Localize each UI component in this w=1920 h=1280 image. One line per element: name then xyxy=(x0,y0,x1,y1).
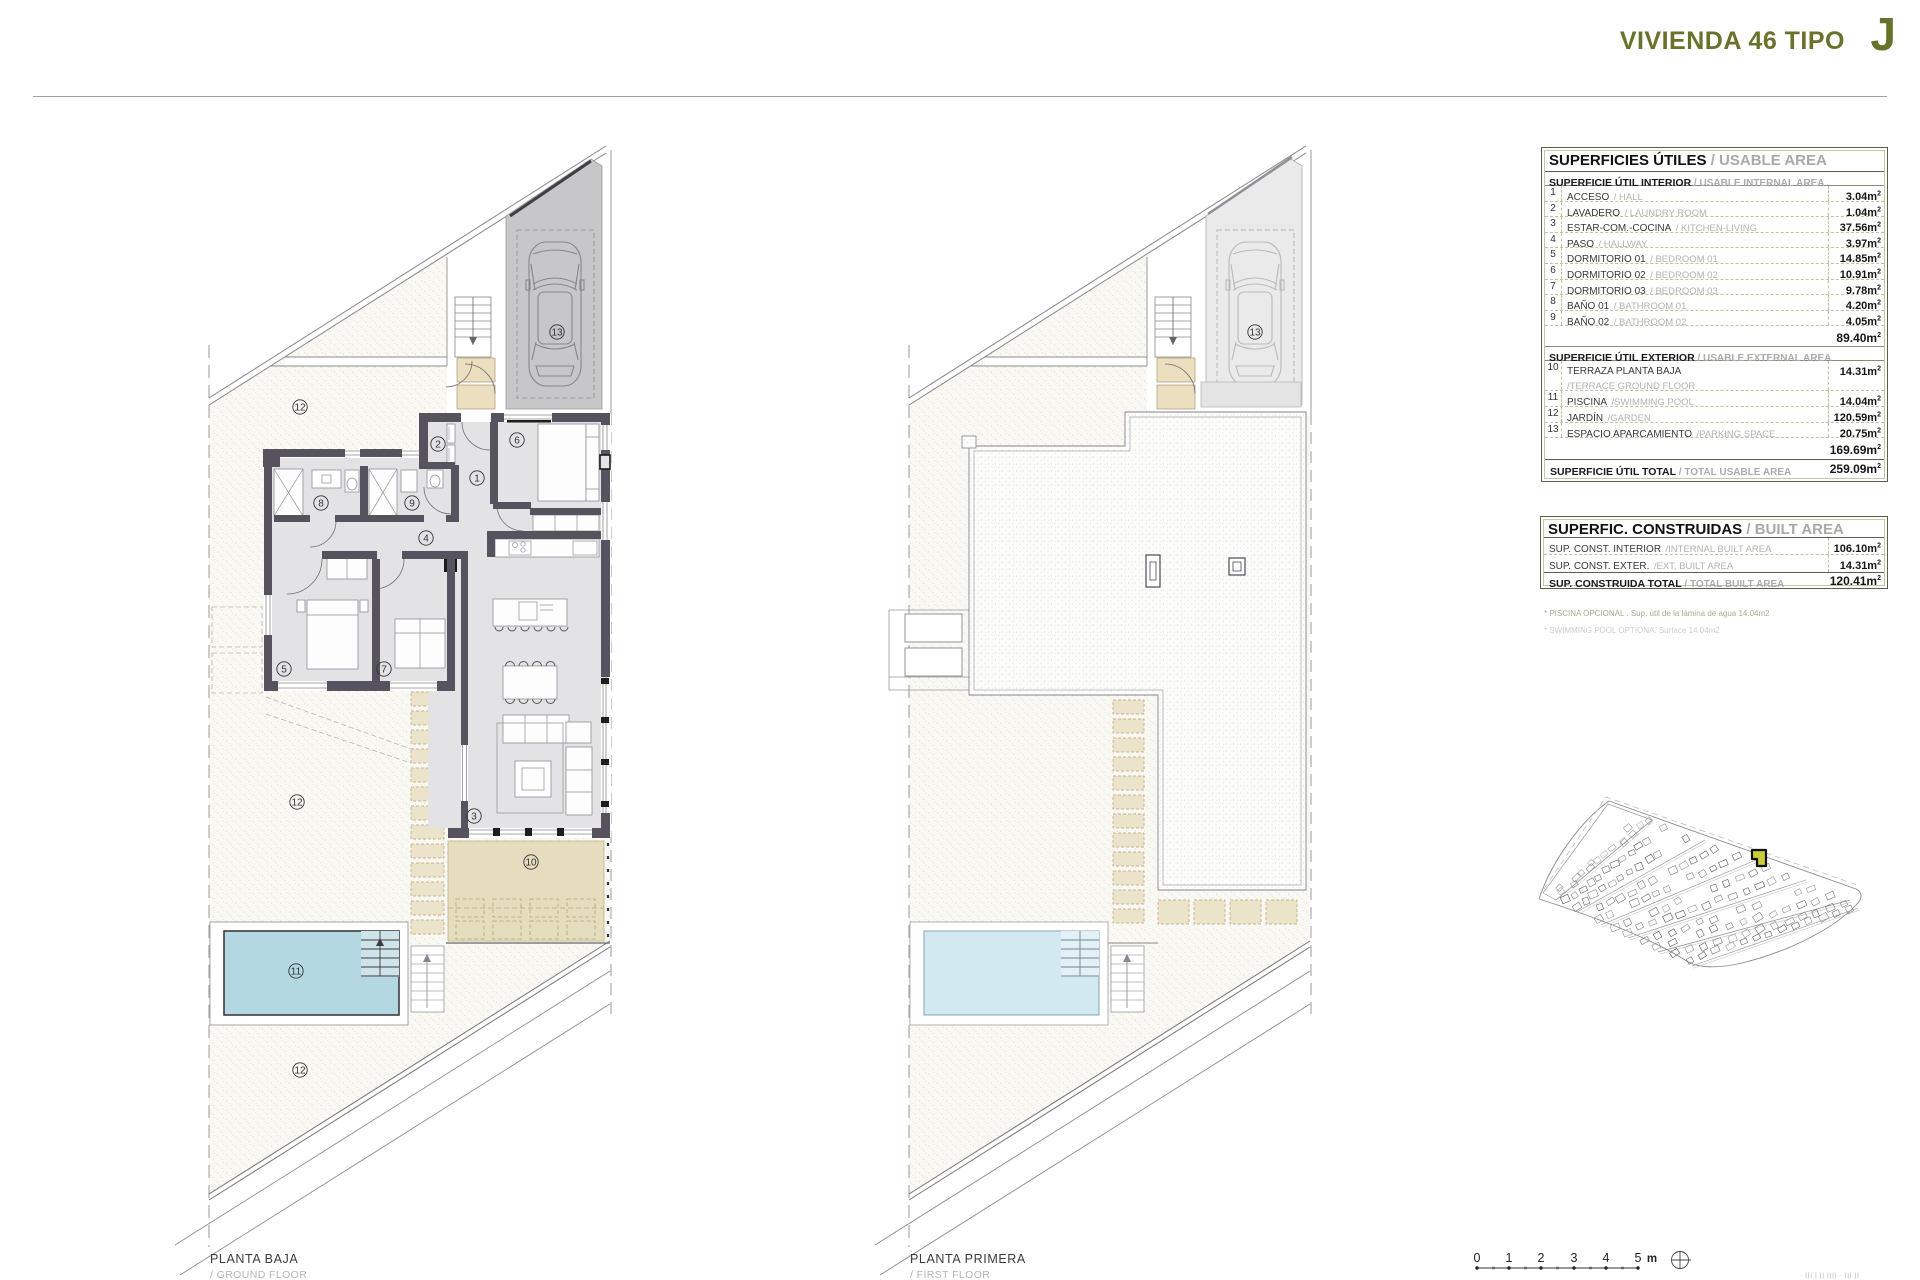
svg-text:6: 6 xyxy=(514,435,520,446)
svg-text:3: 3 xyxy=(471,811,477,822)
svg-text:4: 4 xyxy=(1603,1251,1610,1265)
svg-text:9: 9 xyxy=(409,498,415,509)
svg-text:4: 4 xyxy=(423,533,429,544)
svg-text:2: 2 xyxy=(1538,1251,1545,1265)
svg-text:12: 12 xyxy=(291,797,303,808)
svg-text:0: 0 xyxy=(1474,1251,1481,1265)
svg-text:5: 5 xyxy=(281,664,287,675)
svg-text:PLANTA BAJA: PLANTA BAJA xyxy=(210,1252,298,1266)
svg-text:5: 5 xyxy=(1635,1251,1642,1265)
svg-text:1: 1 xyxy=(474,473,480,484)
svg-text:11: 11 xyxy=(291,966,302,977)
svg-text:m: m xyxy=(1647,1253,1657,1265)
svg-text:/ FIRST FLOOR: / FIRST FLOOR xyxy=(910,1269,990,1280)
svg-text:10: 10 xyxy=(525,857,537,868)
svg-text:12: 12 xyxy=(294,1065,306,1076)
svg-text:12: 12 xyxy=(294,402,306,413)
svg-text:1: 1 xyxy=(1506,1251,1513,1265)
svg-text:2: 2 xyxy=(435,439,441,450)
svg-text:13: 13 xyxy=(551,327,563,338)
svg-text:3: 3 xyxy=(1571,1251,1578,1265)
svg-text:· ||| | || |||| · ||| ||: · ||| | || |||| · ||| || xyxy=(1800,1273,1860,1279)
svg-text:13: 13 xyxy=(1249,327,1261,338)
svg-text:PLANTA PRIMERA: PLANTA PRIMERA xyxy=(910,1252,1026,1266)
svg-text:/ GROUND FLOOR: / GROUND FLOOR xyxy=(210,1269,307,1280)
svg-text:7: 7 xyxy=(381,664,387,675)
svg-text:8: 8 xyxy=(318,498,324,509)
